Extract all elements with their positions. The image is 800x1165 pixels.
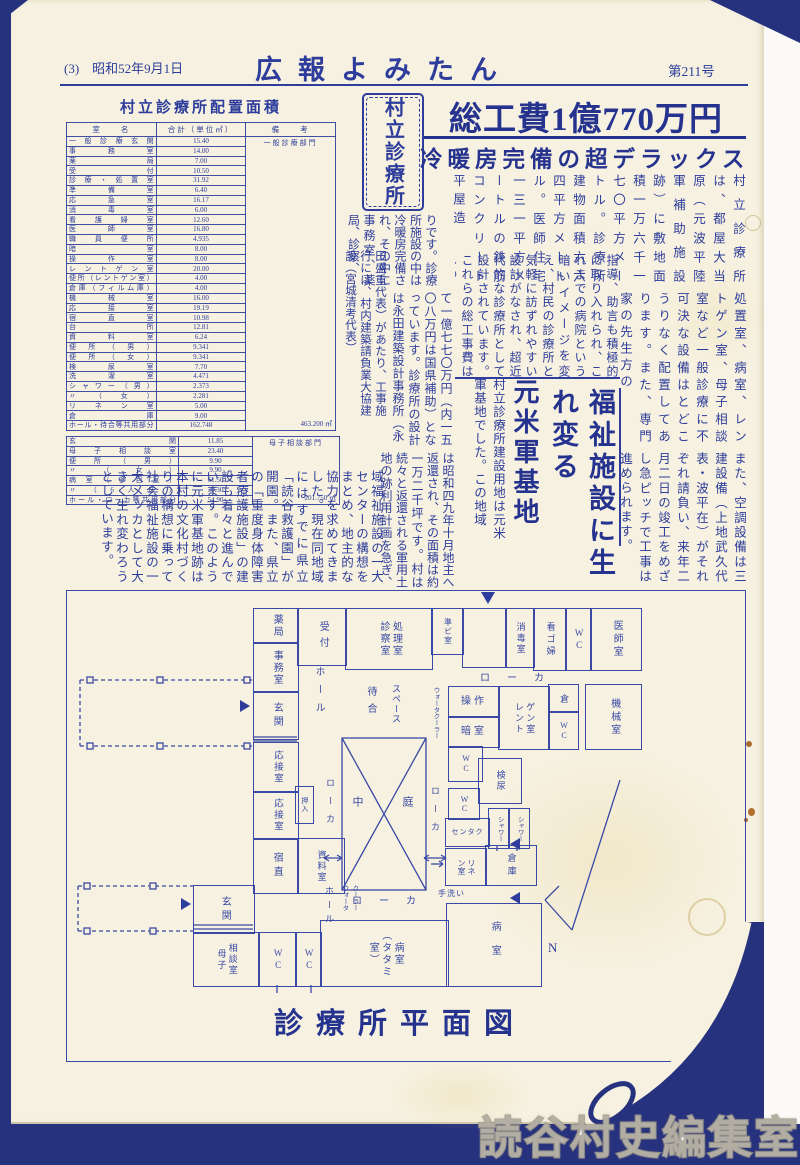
room-area: 4.471 [156, 372, 246, 382]
plan-room: シャワー [488, 808, 510, 849]
room-area: 8.00 [156, 254, 246, 264]
plan-room-label: 機械室 [607, 698, 620, 737]
room-area: 14.00 [156, 146, 246, 156]
plan-area-label: ローカ [352, 892, 433, 907]
room-area: 5.00 [156, 401, 246, 411]
plan-room-label: WC [461, 754, 471, 774]
plan-room: 病室 （タタミ室） [320, 920, 449, 987]
room-area: 7.70 [156, 362, 246, 372]
room-area: 20.00 [156, 264, 246, 274]
plan-room-label: 処理室 診察室 [377, 621, 402, 657]
clinic-badge: 村立診療所 [362, 93, 424, 211]
room-name: 暗室 [67, 244, 157, 254]
plan-room-label: 資料室 [315, 850, 326, 883]
plan-room: 押入 [295, 786, 314, 824]
room-area: 15.40 [156, 137, 246, 147]
room-name: 便所（男） [67, 456, 179, 466]
page-number-date: (3) 昭和52年9月1日 [64, 58, 183, 77]
plan-room-label: 玄関 [270, 702, 283, 730]
room-name: 便所（女） [67, 352, 157, 362]
room-name: 事務室 [67, 146, 157, 156]
plan-room-label: 消毒室 [514, 622, 525, 655]
article-seg-4: 気軽に訪ずれやすい設計がなされ、超近代的な診療所として設計されています。これらの… [455, 254, 539, 378]
room-area: 6.24 [156, 332, 246, 342]
plan-area-label: ホール [323, 886, 336, 928]
plan-room-label: 暗室 [461, 726, 487, 739]
plan-room-label: 病室 （タタミ室） [366, 921, 404, 986]
room-name: ホール・待合等共用部分 [67, 421, 157, 431]
plan-room: 機械室 [585, 684, 642, 750]
plan-room-label: 押入 [300, 797, 309, 813]
area-header-row: 室 名合計（単位㎡）備 考 [67, 123, 336, 137]
room-area: 16.00 [156, 293, 246, 303]
section-label: 一般診療部門 [248, 137, 333, 147]
room-name: 宿直室 [67, 313, 157, 323]
room-name: 倉庫 [67, 411, 157, 421]
plan-room-label: 相談室 母子 [215, 943, 238, 976]
plan-room: 薬局 [253, 608, 299, 644]
area-table-section: 室 名合計（単位㎡）備 考一般診療玄関15.40一般診療部門463.200 ㎡事… [66, 122, 336, 431]
room-area: 19.19 [156, 303, 246, 313]
room-area: 2.281 [156, 391, 246, 401]
headline-divider [424, 136, 746, 139]
room-name: 検尿室 [67, 362, 157, 372]
floorplan-caption: 診療所平面図 [230, 1000, 570, 1042]
room-name: 倉庫（フィルム庫） [67, 283, 157, 293]
plan-room: 玄関 [193, 885, 255, 934]
plan-room: 医師室 [590, 608, 642, 671]
area-row: 玄関11.85母子相談部門201.750 ㎡ [67, 436, 340, 446]
room-area: 10.50 [156, 166, 246, 176]
room-name: リネン室 [67, 401, 157, 411]
room-name: 台所 [67, 323, 157, 333]
room-name: 診療・処置室 [67, 176, 157, 186]
room-area: 16.17 [156, 195, 246, 205]
area-col-header: 室 名 [67, 123, 157, 137]
plan-room: シャワー [508, 808, 530, 849]
room-name: 看護婦室 [67, 215, 157, 225]
plan-room: 相談室 母子 [193, 932, 260, 987]
plan-room [462, 608, 507, 668]
scan-edge-left [0, 0, 11, 1165]
room-name: 機械室 [67, 293, 157, 303]
clinic-badge-label: 村立診療所 [379, 97, 408, 207]
room-name: 応接室 [67, 303, 157, 313]
plan-room-label: リネ ン室 [456, 859, 476, 875]
room-name: 母子相談室 [67, 446, 179, 456]
issue-number: 第211号 [668, 60, 715, 80]
room-area: 16.80 [156, 225, 246, 235]
plan-room-label: シャワー [495, 816, 503, 842]
plan-room: 倉庫 [485, 845, 537, 886]
area-col-header: 備 考 [246, 123, 336, 137]
room-name: 便所（男） [67, 342, 157, 352]
plan-room-label: WC [272, 948, 283, 972]
plan-room-label: WC [559, 721, 569, 741]
plan-room-label: センタク [452, 828, 484, 837]
room-area: 9.341 [156, 352, 246, 362]
section-label: 母子相談部門 [255, 437, 337, 447]
room-name: 便所（レントゲン室） [67, 274, 157, 284]
plan-room-label: 受付 [316, 621, 329, 653]
plan-room: 受付 [297, 608, 347, 666]
room-area: 4.935 [156, 234, 246, 244]
room-name: 受付 [67, 166, 157, 176]
room-area: 4.00 [156, 274, 246, 284]
plan-room: 倉 [548, 684, 579, 713]
plan-room: WC [565, 608, 592, 671]
room-name: 操作室 [67, 254, 157, 264]
article-seg-2: 処置室、病室、レントゲン室、母子相談室など一般診療に不可決な設備はとどこうりなく… [620, 292, 748, 446]
room-name: 医師室 [67, 225, 157, 235]
plan-room: 看ゴ婦 [533, 608, 567, 671]
plan-room-label: 準ビ室 [443, 618, 453, 645]
plan-room: 応接室 [253, 791, 299, 840]
plan-room-label: 医師室 [610, 620, 623, 659]
area-col-header: 合計（単位㎡） [156, 123, 246, 137]
plan-room: 操作 [448, 686, 500, 718]
plan-room-label: 応接室 [270, 750, 282, 785]
plan-room-label: 操作 [461, 696, 487, 709]
plan-room-label: 玄関 [218, 896, 231, 924]
plan-room-label: 倉 [558, 694, 569, 703]
plan-room: 資料室 [297, 838, 345, 894]
plan-room: 宿直 [253, 838, 299, 894]
room-area: 11.85 [179, 436, 253, 446]
room-area: 162.748 [156, 421, 246, 431]
article-seg-7: また、空調設備は三建設備（上地武久代表・波平在）がそれぞれ請負い、来年二月二日の… [620, 452, 748, 584]
subheadline-base: 元米軍基地 [505, 378, 543, 530]
room-area: 12.81 [156, 323, 246, 333]
room-area: 7.00 [156, 156, 246, 166]
plan-room-label: 倉庫 [505, 853, 516, 879]
room-area: 6.40 [156, 185, 246, 195]
plan-area-label: 手洗い [438, 888, 465, 899]
room-name: 玄関 [67, 436, 179, 446]
room-name: 〃（女） [67, 391, 157, 401]
headline-sub: 冷暖房完備の超デラックス [420, 142, 748, 174]
room-area: 2.373 [156, 381, 246, 391]
area-table-title: 村立診療所配置面積 [66, 96, 336, 117]
watermark: 読谷村史編集室 [478, 1102, 800, 1165]
plan-room-label: ゲン室 レント [513, 702, 536, 735]
room-area: 9.90 [179, 456, 253, 466]
section-note: 一般診療部門463.200 ㎡ [246, 137, 336, 431]
room-name: 準備室 [67, 185, 157, 195]
plan-area-label: ローカ [429, 786, 442, 840]
plan-room-label: 薬局 [270, 614, 283, 638]
room-name: 職員便所 [67, 234, 157, 244]
article-seg-9: は昭和四九年十月地主へ返還され、その面積は約一万二千坪です。村は続々と返還される… [378, 452, 455, 588]
plan-area-label: 中 [349, 796, 365, 807]
area-row: 一般診療玄関15.40一般診療部門463.200 ㎡ [67, 137, 336, 147]
plan-area-label: スペース [390, 684, 403, 724]
room-area: 12.60 [156, 215, 246, 225]
article-seg-3: 指導、助言も積極的に取り入れられ、これまでの病院という暗いイメージを変え、村民の… [540, 254, 620, 378]
plan-room: 消毒室 [505, 608, 535, 668]
plan-room: 検尿 [478, 758, 522, 804]
room-area: 9.341 [156, 342, 246, 352]
plan-room-label: 応接室 [270, 798, 282, 833]
room-area: 6.00 [156, 205, 246, 215]
area-table: 村立診療所配置面積 室 名合計（単位㎡）備 考一般診療玄関15.40一般診療部門… [66, 96, 336, 510]
plan-room-label: 看ゴ婦 [544, 622, 555, 658]
area-table-sections: 室 名合計（単位㎡）備 考一般診療玄関15.40一般診療部門463.200 ㎡事… [66, 122, 336, 505]
plan-room: センタク [445, 818, 490, 847]
room-area: 4.00 [156, 283, 246, 293]
room-name: 応急室 [67, 195, 157, 205]
room-name: レントゲン室 [67, 264, 157, 274]
plan-room-label: WC [573, 628, 584, 652]
plan-room-label: 検尿 [494, 770, 505, 792]
plan-room: 応接室 [253, 742, 299, 793]
plan-room-label: 病室 [488, 921, 501, 969]
plan-room: 準ビ室 [431, 608, 464, 655]
room-area: 31.92 [156, 176, 246, 186]
plan-area-label: ホール [311, 666, 326, 720]
section-total: 463.200 ㎡ [301, 420, 333, 428]
plan-area-label: 待合 [363, 686, 378, 720]
room-name: 洗濯室 [67, 372, 157, 382]
plan-room: 処理室 診察室 [345, 608, 433, 670]
article-seg-6: 田盛重代表）があたり、工事施行には、村内建築請負業大協建設（宮城清考代表） [341, 250, 387, 416]
plan-room: WC [548, 711, 579, 750]
subheadline-welfare: 福祉施設に生れ変る [543, 388, 618, 586]
article-seg-10: 域福祉施設の一大センターの構想をまとめ、地主的な協力を求めてきました。現在同地域… [64, 470, 383, 584]
article-seg-5: て一億七七〇万円（内一五〇八万円は国県補助）となっています。診療所の設計は永田建… [388, 292, 454, 446]
publication-title: 広報よみたん [255, 48, 545, 87]
plan-room: WC [448, 788, 480, 820]
plan-room-label: WC [303, 948, 314, 972]
plan-room: ゲン室 レント [498, 686, 550, 750]
plan-area-label: 庭 [399, 796, 415, 807]
headline-main: 総工費1億770万円 [424, 92, 748, 140]
plan-room: 玄関 [253, 691, 299, 740]
scanned-newsletter-page: (3) 昭和52年9月1日 広報よみたん 第211号 村立診療所配置面積 室 名… [0, 0, 800, 1165]
plan-room-label: WC [459, 795, 469, 813]
room-area: 8.00 [156, 244, 246, 254]
room-name: 消毒室 [67, 205, 157, 215]
header-rule [60, 84, 748, 86]
room-area: 9.00 [156, 411, 246, 421]
plan-room: 病室 [446, 903, 542, 987]
plan-area-label: ウォータクーラー [430, 687, 440, 739]
plan-room: 事務室 [253, 642, 299, 693]
plan-room-label: 事務室 [270, 650, 283, 686]
room-name: 一般診療玄関 [67, 137, 157, 147]
room-name: シャワー（男） [67, 381, 157, 391]
plan-area-label: クーラー ウォータ [339, 885, 359, 911]
plan-room-label: 宿直 [270, 852, 283, 880]
plan-room: WC [258, 932, 297, 987]
room-area: 10.98 [156, 313, 246, 323]
subheadline-rule [619, 388, 621, 546]
room-name: 薬局 [67, 156, 157, 166]
scan-margin-right [764, 0, 800, 1124]
room-area: 23.40 [179, 446, 253, 456]
room-name: 資料室 [67, 332, 157, 342]
plan-room-label: シャワー [515, 816, 523, 842]
plan-room: 暗室 [448, 716, 500, 748]
plan-area-label: ローカ [480, 669, 561, 684]
article-seg-8: 村立診療所建設用地は元米軍基地でした。この地域 [455, 378, 507, 540]
plan-room: リネ ン室 [445, 848, 487, 886]
plan-room: WC [295, 932, 322, 987]
plan-area-label: ローカ [324, 778, 337, 832]
